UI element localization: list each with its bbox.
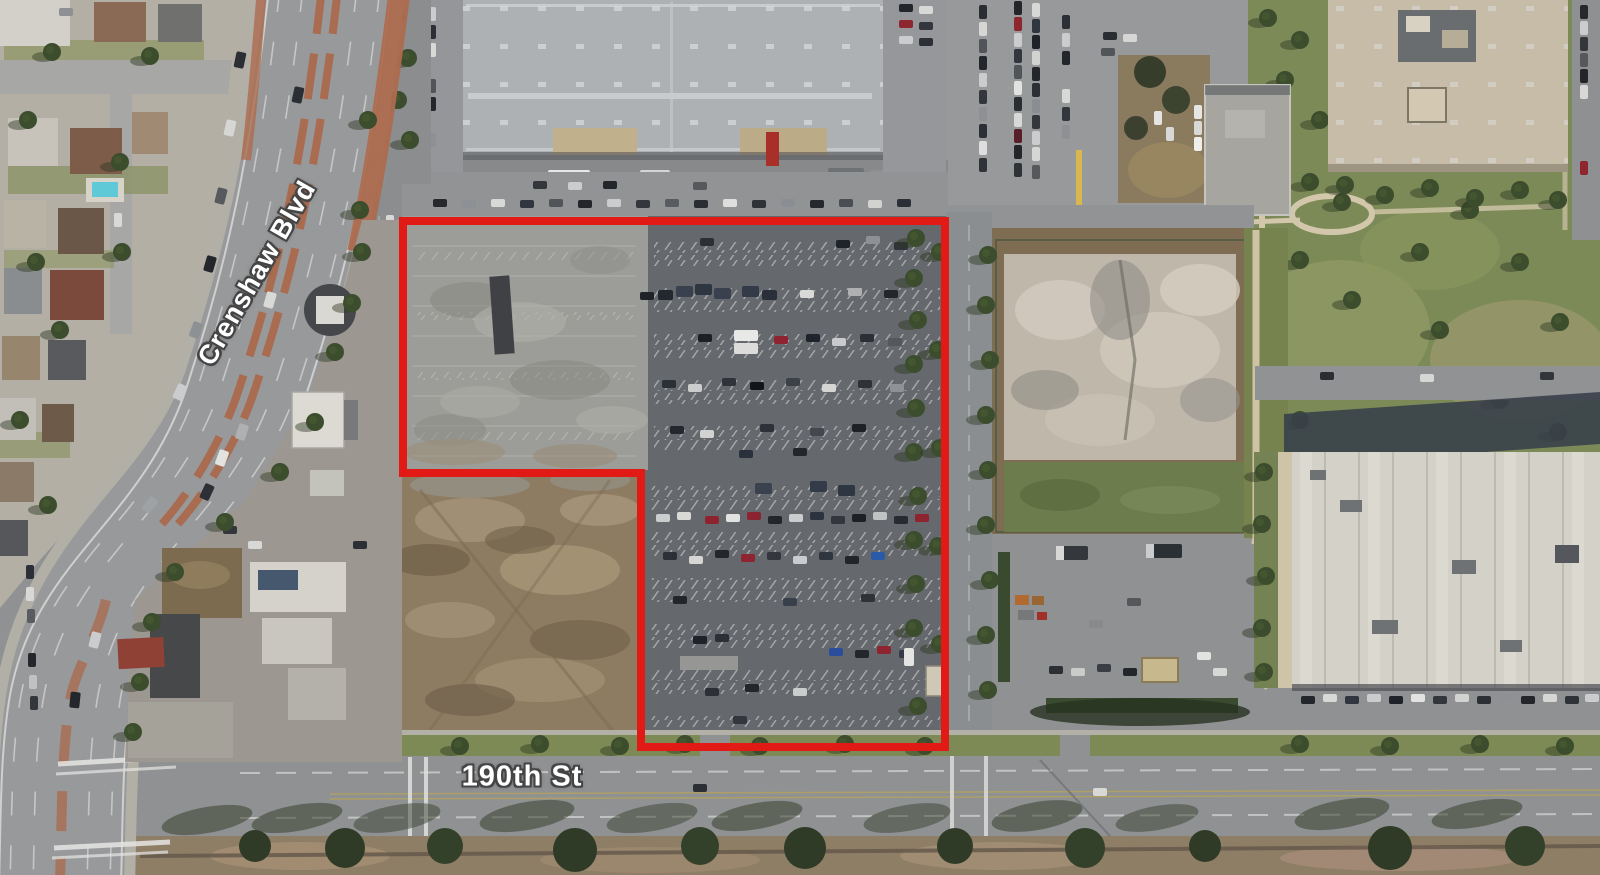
road-label-190th-st: 190th St: [462, 761, 583, 794]
aerial-map: Crenshaw Blvd 190th St: [0, 0, 1600, 875]
satellite-imagery: [0, 0, 1600, 875]
street-far-right: [1572, 0, 1600, 240]
swimming-pool: [92, 182, 118, 197]
dirt-lot: [390, 469, 640, 748]
vacant-pad: [403, 216, 648, 470]
demolished-parcel: [948, 205, 1288, 540]
parking-lot-top-center: [946, 0, 1290, 218]
driveway-north: [402, 172, 948, 216]
red-roof-building: [117, 637, 165, 669]
equipment-yard: [992, 540, 1281, 748]
street-east-of-parcel: [946, 212, 999, 762]
industrial-building-right: [1242, 366, 1600, 704]
